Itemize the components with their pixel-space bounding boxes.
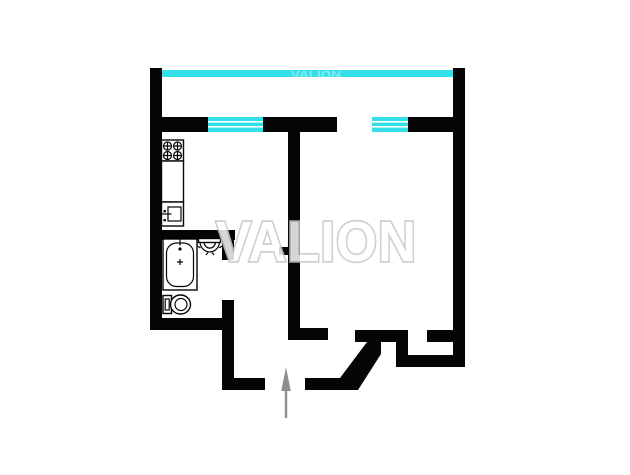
window-wall-segment-b [263,117,337,132]
partition-bottom-flange [288,328,328,340]
kitchen-counter [162,161,184,202]
closet-bottom-wall [396,355,465,367]
right-exterior-wall [453,68,465,367]
left-exterior-wall [150,68,162,330]
entrance-jamb-right [305,378,343,390]
floor-plan: VALION VALION [0,0,630,475]
watermark: VALION [216,210,417,274]
room-bottom-wall-a [355,330,398,342]
diagonal-hall-wall [340,342,381,390]
floor-plan-drawing: VALION VALION [0,0,630,475]
bathroom-bottom-wall [150,318,234,330]
window-wall-segment-c [408,117,453,132]
bathtub-icon [163,237,197,291]
room-window [372,117,408,132]
kitchen-window [208,117,263,132]
room-bottom-wall-b [427,330,453,342]
toilet-icon [163,295,191,314]
entrance-arrow-icon [281,367,291,418]
watermark-small: VALION [291,70,341,81]
stove-icon [162,140,184,161]
kitchen-sink-icon [162,202,184,226]
entrance-jamb-left [222,378,265,390]
window-wall-segment-a [162,117,208,132]
